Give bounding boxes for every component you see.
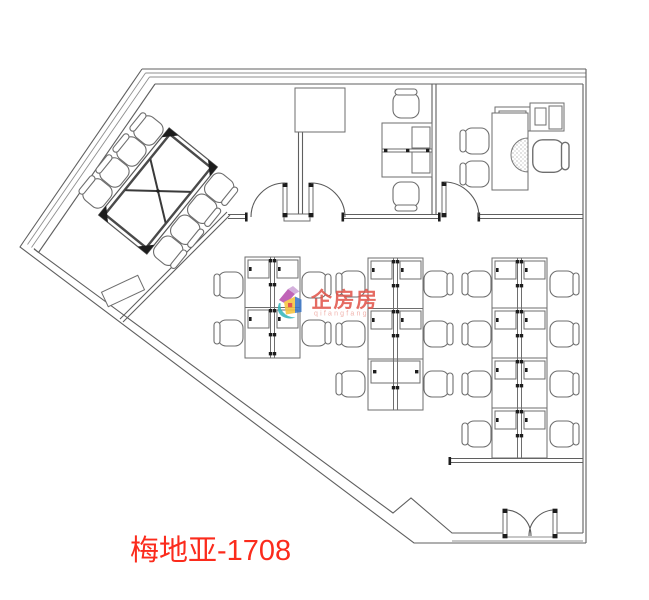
column <box>295 88 345 132</box>
middle-office-furniture <box>382 89 432 211</box>
chair-icon <box>462 421 491 447</box>
chair-icon <box>462 271 491 297</box>
task-chair-icon <box>533 140 569 173</box>
entrance-double-door <box>503 509 558 538</box>
chair-icon <box>214 320 243 346</box>
floor-plan-canvas: 企房房 qifangfang 梅地亚-1708 <box>0 0 649 600</box>
bottom-partition-wall <box>450 459 583 463</box>
unit-label: 梅地亚-1708 <box>130 534 291 567</box>
executive-office-furniture <box>460 103 569 190</box>
office-divider-wall <box>432 84 436 214</box>
floor-plan: 企房房 qifangfang 梅地亚-1708 <box>0 0 649 600</box>
chair-icon <box>302 320 331 346</box>
chair-icon <box>424 371 453 397</box>
desk-cluster-middle <box>336 258 453 410</box>
chair-icon <box>393 182 419 211</box>
wall-pier <box>101 275 144 306</box>
guest-chair-icon <box>460 128 489 154</box>
chair-icon <box>336 321 365 347</box>
chair-icon <box>336 371 365 397</box>
middle-office-door <box>309 183 346 217</box>
chair-icon <box>393 89 419 118</box>
guest-chair-icon <box>460 161 489 187</box>
chair-icon <box>214 272 243 298</box>
wall-stub-base <box>284 214 310 221</box>
chair-icon <box>550 271 579 297</box>
chair-icon <box>550 371 579 397</box>
chair-icon <box>550 421 579 447</box>
chair-icon <box>462 371 491 397</box>
conference-set <box>75 108 242 273</box>
chair-icon <box>424 271 453 297</box>
brand-subtext: qifangfang <box>314 311 369 318</box>
brand-text: 企房房 <box>310 288 379 312</box>
desk-cluster-right <box>462 258 579 458</box>
chair-icon <box>550 321 579 347</box>
chair-icon <box>424 321 453 347</box>
chair-icon <box>462 321 491 347</box>
conference-door <box>251 183 288 217</box>
